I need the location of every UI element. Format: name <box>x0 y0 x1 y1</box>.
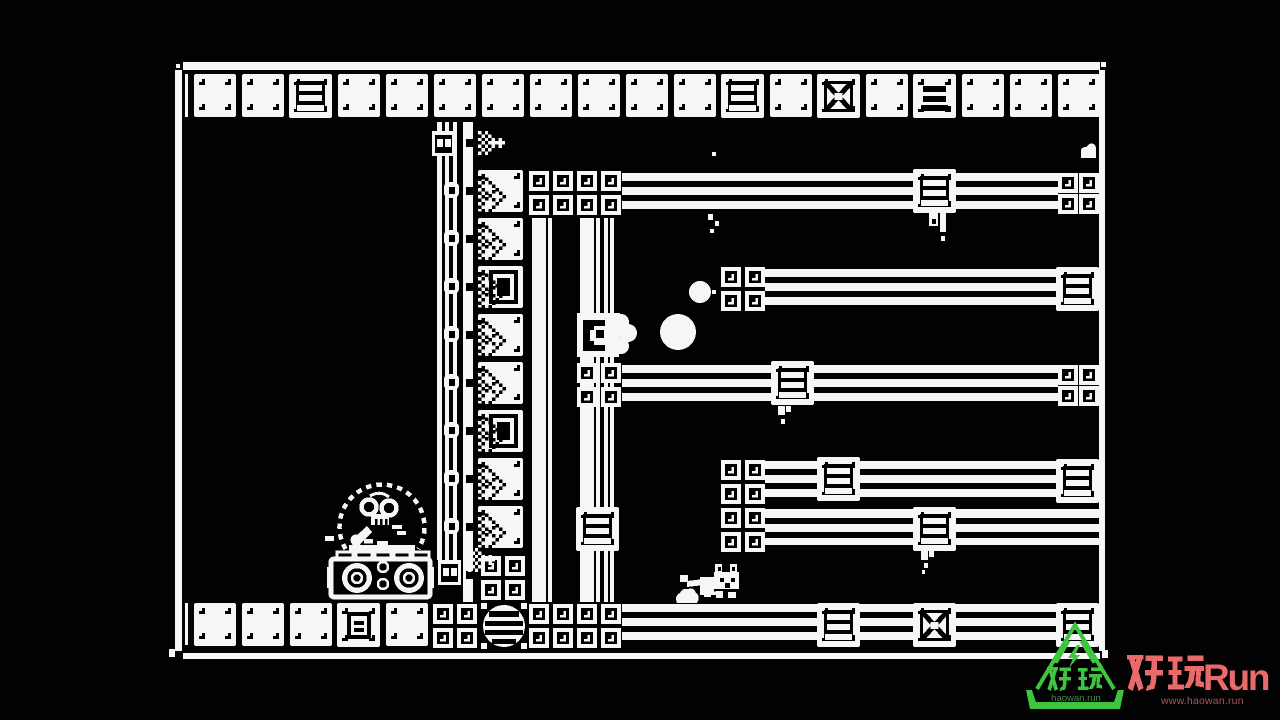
svg-text:www.haowan.run: www.haowan.run <box>1160 695 1244 707</box>
svg-text:Run: Run <box>1203 657 1269 698</box>
svg-text:haowan.run: haowan.run <box>1051 693 1101 704</box>
